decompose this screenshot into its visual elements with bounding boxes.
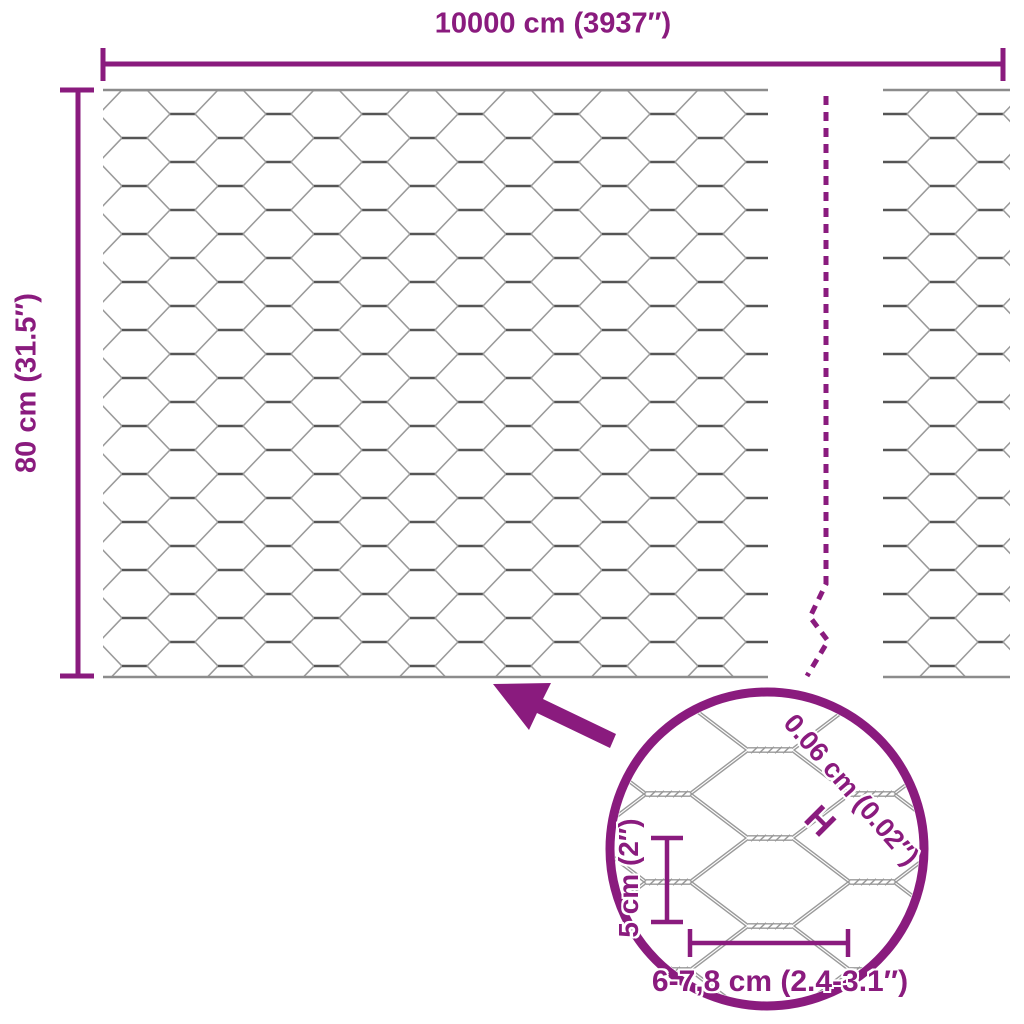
height-dimension-line xyxy=(60,90,94,676)
mesh-size-horizontal-label: 6-7,8 cm (2.4-3.1″) xyxy=(652,967,908,997)
diagram-canvas xyxy=(0,0,1024,1024)
product-dimension-diagram: 10000 cm (3937″) 80 cm (31.5″) 0.06 cm (… xyxy=(0,0,1024,1024)
mesh-roll-front xyxy=(103,90,768,677)
mesh-size-vertical-label: 5 cm (2″) xyxy=(615,818,643,937)
mesh-roll-continuation xyxy=(883,90,1010,677)
detail-circle xyxy=(606,688,928,1010)
break-line xyxy=(807,96,828,676)
width-dimension-line xyxy=(103,48,1003,81)
height-dimension-label: 80 cm (31.5″) xyxy=(13,293,42,473)
width-dimension-label: 10000 cm (3937″) xyxy=(435,10,671,39)
zoom-arrow-icon xyxy=(493,683,616,748)
